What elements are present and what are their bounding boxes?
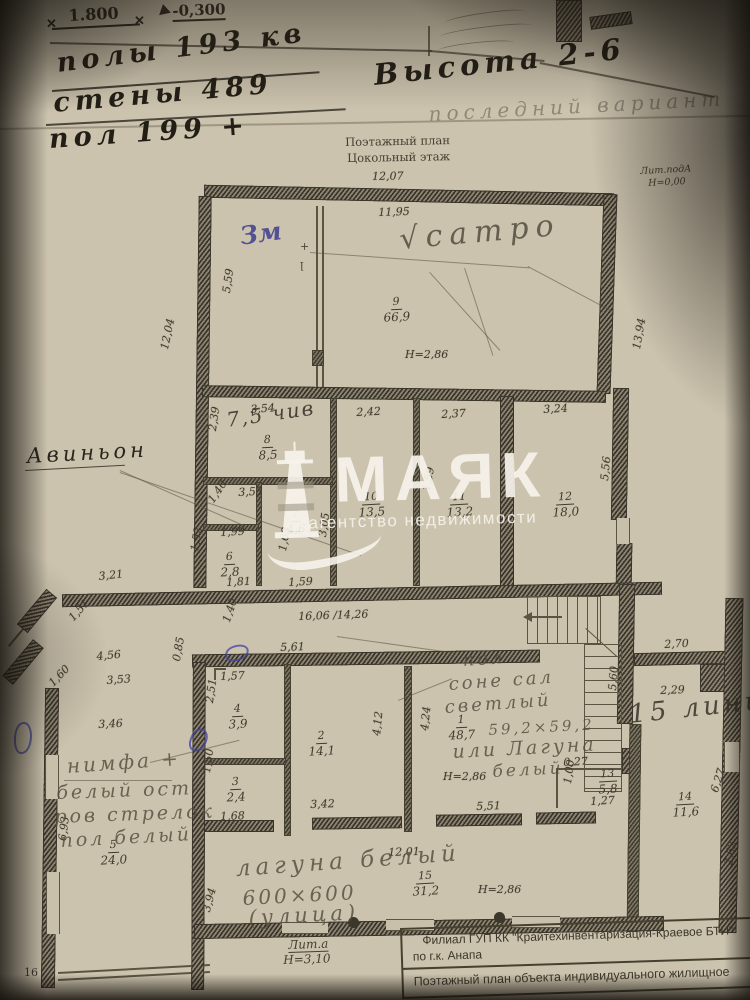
room-number: 2 bbox=[315, 730, 327, 744]
room-area: 2,4 bbox=[226, 789, 246, 804]
height-label: Н=2,86 bbox=[405, 348, 448, 361]
liter-a-height: Н=3,10 bbox=[283, 951, 331, 967]
wall-segment bbox=[500, 396, 514, 588]
dimension-label: 5,61 bbox=[280, 640, 305, 654]
room-label: 43,9 bbox=[227, 697, 248, 732]
wall-segment bbox=[204, 758, 286, 765]
window-opening bbox=[616, 518, 630, 544]
room-number: 8 bbox=[261, 434, 273, 448]
room-area: 13,2 bbox=[446, 504, 473, 520]
dimension-label: 3,46 bbox=[98, 717, 123, 731]
room-label: 214,1 bbox=[307, 723, 335, 758]
room-label: 32,4 bbox=[225, 770, 246, 805]
bti-stamp: Филиал ГУП КК "Крайтехинвентаризация-Кра… bbox=[400, 916, 750, 999]
height-label: Н=2,86 bbox=[443, 770, 486, 783]
room-area: 8,5 bbox=[258, 447, 278, 462]
wall-segment bbox=[330, 398, 337, 586]
room-area: 11,6 bbox=[672, 804, 699, 820]
room-area: 5,8 bbox=[598, 781, 618, 796]
wall-segment bbox=[312, 816, 402, 830]
room-number: 10 bbox=[362, 491, 381, 506]
handwritten-room1-note: пол bbox=[462, 647, 506, 671]
room-area: 14,1 bbox=[308, 743, 335, 759]
wall-segment bbox=[413, 398, 420, 586]
room-label: 88,5 bbox=[257, 428, 278, 463]
plan-title-line2: Цокольный этаж bbox=[347, 149, 450, 165]
room-label: 74,6 bbox=[285, 502, 306, 537]
staircase-upper-flight bbox=[527, 596, 601, 644]
room-number: 15 bbox=[416, 870, 435, 885]
plan-title-line1: Поэтажный план bbox=[345, 133, 450, 149]
survey-cross-mark: ✕ bbox=[46, 17, 57, 32]
page-number: 16 bbox=[24, 966, 38, 979]
dimension-label: 3,53 bbox=[106, 672, 131, 687]
dimension-label: 1,57 bbox=[220, 669, 245, 683]
room-label: 1411,6 bbox=[671, 784, 699, 819]
room-number: 13 bbox=[598, 768, 617, 783]
dimension-label: 4,56 bbox=[96, 648, 122, 663]
room-area: 24,0 bbox=[100, 852, 127, 868]
wall-segment bbox=[536, 811, 596, 824]
height-label: Н=2,86 bbox=[478, 883, 521, 896]
room-area: 2,8 bbox=[220, 564, 240, 579]
dimension-label: 2,70 bbox=[664, 637, 689, 651]
liter-a-label: Лит.а bbox=[288, 937, 329, 953]
room-number: 14 bbox=[676, 791, 695, 806]
room-area: 18,0 bbox=[552, 504, 579, 520]
dimension-label: 1,99 bbox=[220, 525, 245, 539]
handwritten-zm: Зм bbox=[238, 216, 283, 251]
dimension-label: 12,07 bbox=[372, 169, 404, 183]
handwritten-room1-note: белый bbox=[492, 758, 564, 782]
room-label: 1218,0 bbox=[551, 484, 579, 519]
wall-segment bbox=[700, 664, 726, 692]
dimension-label: 4,12 bbox=[370, 711, 385, 737]
room-label: 135,8 bbox=[597, 762, 618, 797]
window-opening bbox=[46, 872, 60, 934]
survey-cross-mark: + bbox=[300, 240, 309, 253]
survey-cross-mark: ✕ bbox=[134, 14, 145, 29]
dimension-label: 3,53 bbox=[238, 485, 263, 499]
staircase-arrow-icon bbox=[523, 612, 532, 622]
room-area: 66,9 bbox=[383, 309, 410, 325]
room-number: 11 bbox=[450, 491, 469, 506]
room-number: 3 bbox=[229, 776, 241, 790]
dimension-label: 3,24 bbox=[543, 402, 568, 416]
dimension-label: 1,68 bbox=[220, 809, 245, 823]
dimension-label: 2,37 bbox=[441, 407, 466, 421]
room-number: 6 bbox=[223, 551, 235, 565]
room-number: 9 bbox=[390, 296, 402, 310]
dimension-label: 3,21 bbox=[98, 567, 124, 582]
room-number: 4 bbox=[231, 703, 243, 717]
room-area: 4,6 bbox=[286, 521, 306, 536]
room-label: 62,8 bbox=[219, 545, 240, 580]
column-dot bbox=[494, 912, 505, 923]
dimension-label: 5,51 bbox=[476, 799, 501, 813]
survey-dimension-mark: 1.800 bbox=[68, 3, 119, 25]
dimension-label: 1,59 bbox=[288, 575, 313, 589]
elevation-mark: -0,300 bbox=[172, 0, 226, 22]
window-opening bbox=[724, 742, 740, 772]
dimension-label: 16,06 /14,26 bbox=[298, 608, 369, 623]
wall-segment bbox=[436, 813, 522, 826]
room-label: 1113,2 bbox=[445, 484, 473, 519]
room-number: 7 bbox=[289, 508, 301, 522]
photo-canvas: 1.800 ✕ ✕ -0,300 Н=4,60 полы 193 кв стен… bbox=[0, 0, 750, 1000]
room-label: 1013,5 bbox=[357, 484, 385, 519]
dimension-label: 5,56 bbox=[598, 456, 613, 482]
wall-segment bbox=[611, 388, 629, 520]
dimension-label: 3,42 bbox=[310, 797, 335, 811]
dimension-label: 2,42 bbox=[356, 405, 381, 419]
dimension-label: 4,24 bbox=[418, 706, 433, 732]
dimension-label: 11,95 bbox=[378, 205, 410, 219]
room-area: 31,2 bbox=[412, 883, 439, 899]
wall-segment bbox=[312, 350, 324, 366]
dimension-label: 5,60 bbox=[606, 666, 621, 691]
room-number: 12 bbox=[556, 491, 575, 506]
room-label: 966,9 bbox=[382, 289, 410, 324]
room-area: 3,9 bbox=[228, 716, 248, 731]
wall-segment bbox=[404, 666, 412, 832]
room-area: 13,5 bbox=[358, 504, 385, 520]
survey-cross-mark: ꞁ bbox=[300, 258, 304, 271]
wall-segment bbox=[284, 664, 291, 836]
liter-pod-height: Н=0,00 bbox=[648, 176, 686, 189]
